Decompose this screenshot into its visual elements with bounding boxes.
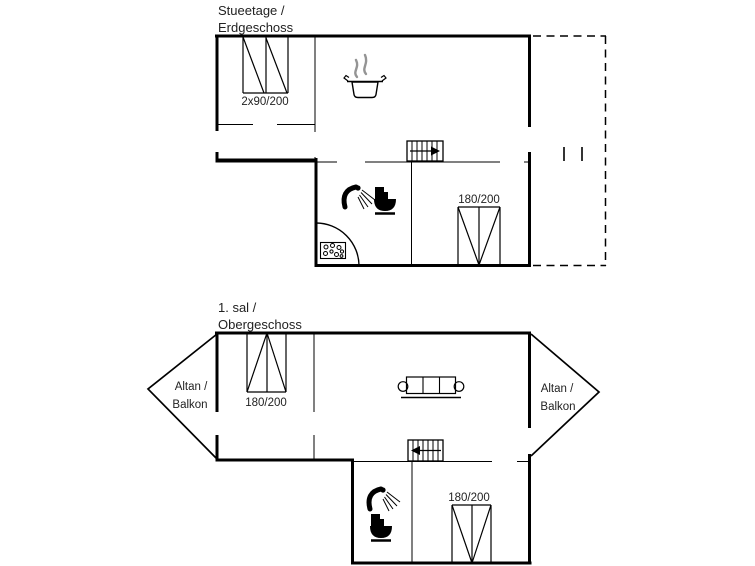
bedroom-window-symbol	[247, 333, 286, 392]
ground-floor-title-line1: Stueetage /	[218, 3, 285, 18]
right-balcony-outline	[531, 334, 599, 456]
shower-drain-icon	[321, 243, 346, 259]
ground-floor-title-line2: Erdgeschoss	[218, 20, 294, 35]
double-window-symbol	[243, 36, 288, 93]
first-floor-plan: 1. sal / Obergeschoss Altan / Balkon Alt…	[148, 300, 599, 565]
stairs-icon	[407, 141, 443, 161]
shower-head-icon	[369, 487, 400, 511]
floor-plan-drawing: Stueetage / Erdgeschoss	[0, 0, 755, 566]
shower-head-icon	[344, 185, 375, 209]
steam-icon	[355, 60, 357, 77]
stairs-up-arrow-icon	[431, 147, 440, 156]
terrace-opening-ticks	[564, 147, 582, 161]
stairs-icon	[408, 440, 443, 461]
first-floor-title-line2: Obergeschoss	[218, 317, 302, 332]
stairs-down-arrow-icon	[411, 446, 420, 455]
right-balcony-label-line1: Altan /	[541, 383, 574, 395]
first-floor-interior-walls	[314, 333, 530, 563]
ground-floor-plan: Stueetage / Erdgeschoss	[215, 3, 606, 267]
left-balcony-label-line2: Balkon	[172, 399, 207, 411]
cooking-pot-icon	[344, 55, 386, 98]
terrace-door-symbol	[458, 207, 500, 265]
terrace-dashed-outline	[533, 36, 606, 266]
lower-window-symbol	[452, 505, 491, 563]
terrace-door-label: 180/200	[458, 194, 500, 206]
sofa-icon	[398, 377, 464, 398]
floor-plan-page: Stueetage / Erdgeschoss	[0, 0, 755, 566]
left-balcony-outline	[148, 334, 217, 459]
lower-window-label: 180/200	[448, 492, 490, 504]
toilet-icon	[370, 514, 392, 541]
left-balcony-label-line1: Altan /	[175, 381, 208, 393]
toilet-icon	[374, 187, 396, 214]
right-balcony-label-line2: Balkon	[540, 401, 575, 413]
ground-floor-exterior-walls	[215, 35, 531, 268]
double-window-label: 2x90/200	[241, 96, 288, 108]
ground-floor-interior-walls	[217, 36, 530, 266]
shower-corner-arc	[316, 223, 359, 266]
bedroom-window-label: 180/200	[245, 397, 287, 409]
first-floor-title-line1: 1. sal /	[218, 300, 257, 315]
